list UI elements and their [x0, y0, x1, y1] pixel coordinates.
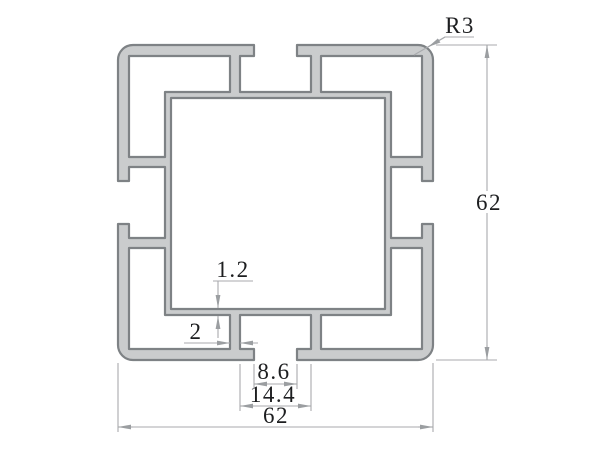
wall-thickness-label: 1.2: [216, 257, 249, 282]
rib-thickness-label: 2: [190, 319, 203, 344]
slot-inner-width-label: 14.4: [250, 382, 296, 407]
profile-drawing: 62 62 14.4 8.6 1.2 2: [0, 0, 600, 450]
overall-height-label: 62: [476, 190, 502, 215]
slot-opening-label: 8.6: [257, 359, 290, 384]
drawing-canvas: 62 62 14.4 8.6 1.2 2: [0, 0, 600, 450]
corner-radius-label: R3: [445, 13, 475, 38]
extrusion-profile-outline: [118, 45, 433, 360]
